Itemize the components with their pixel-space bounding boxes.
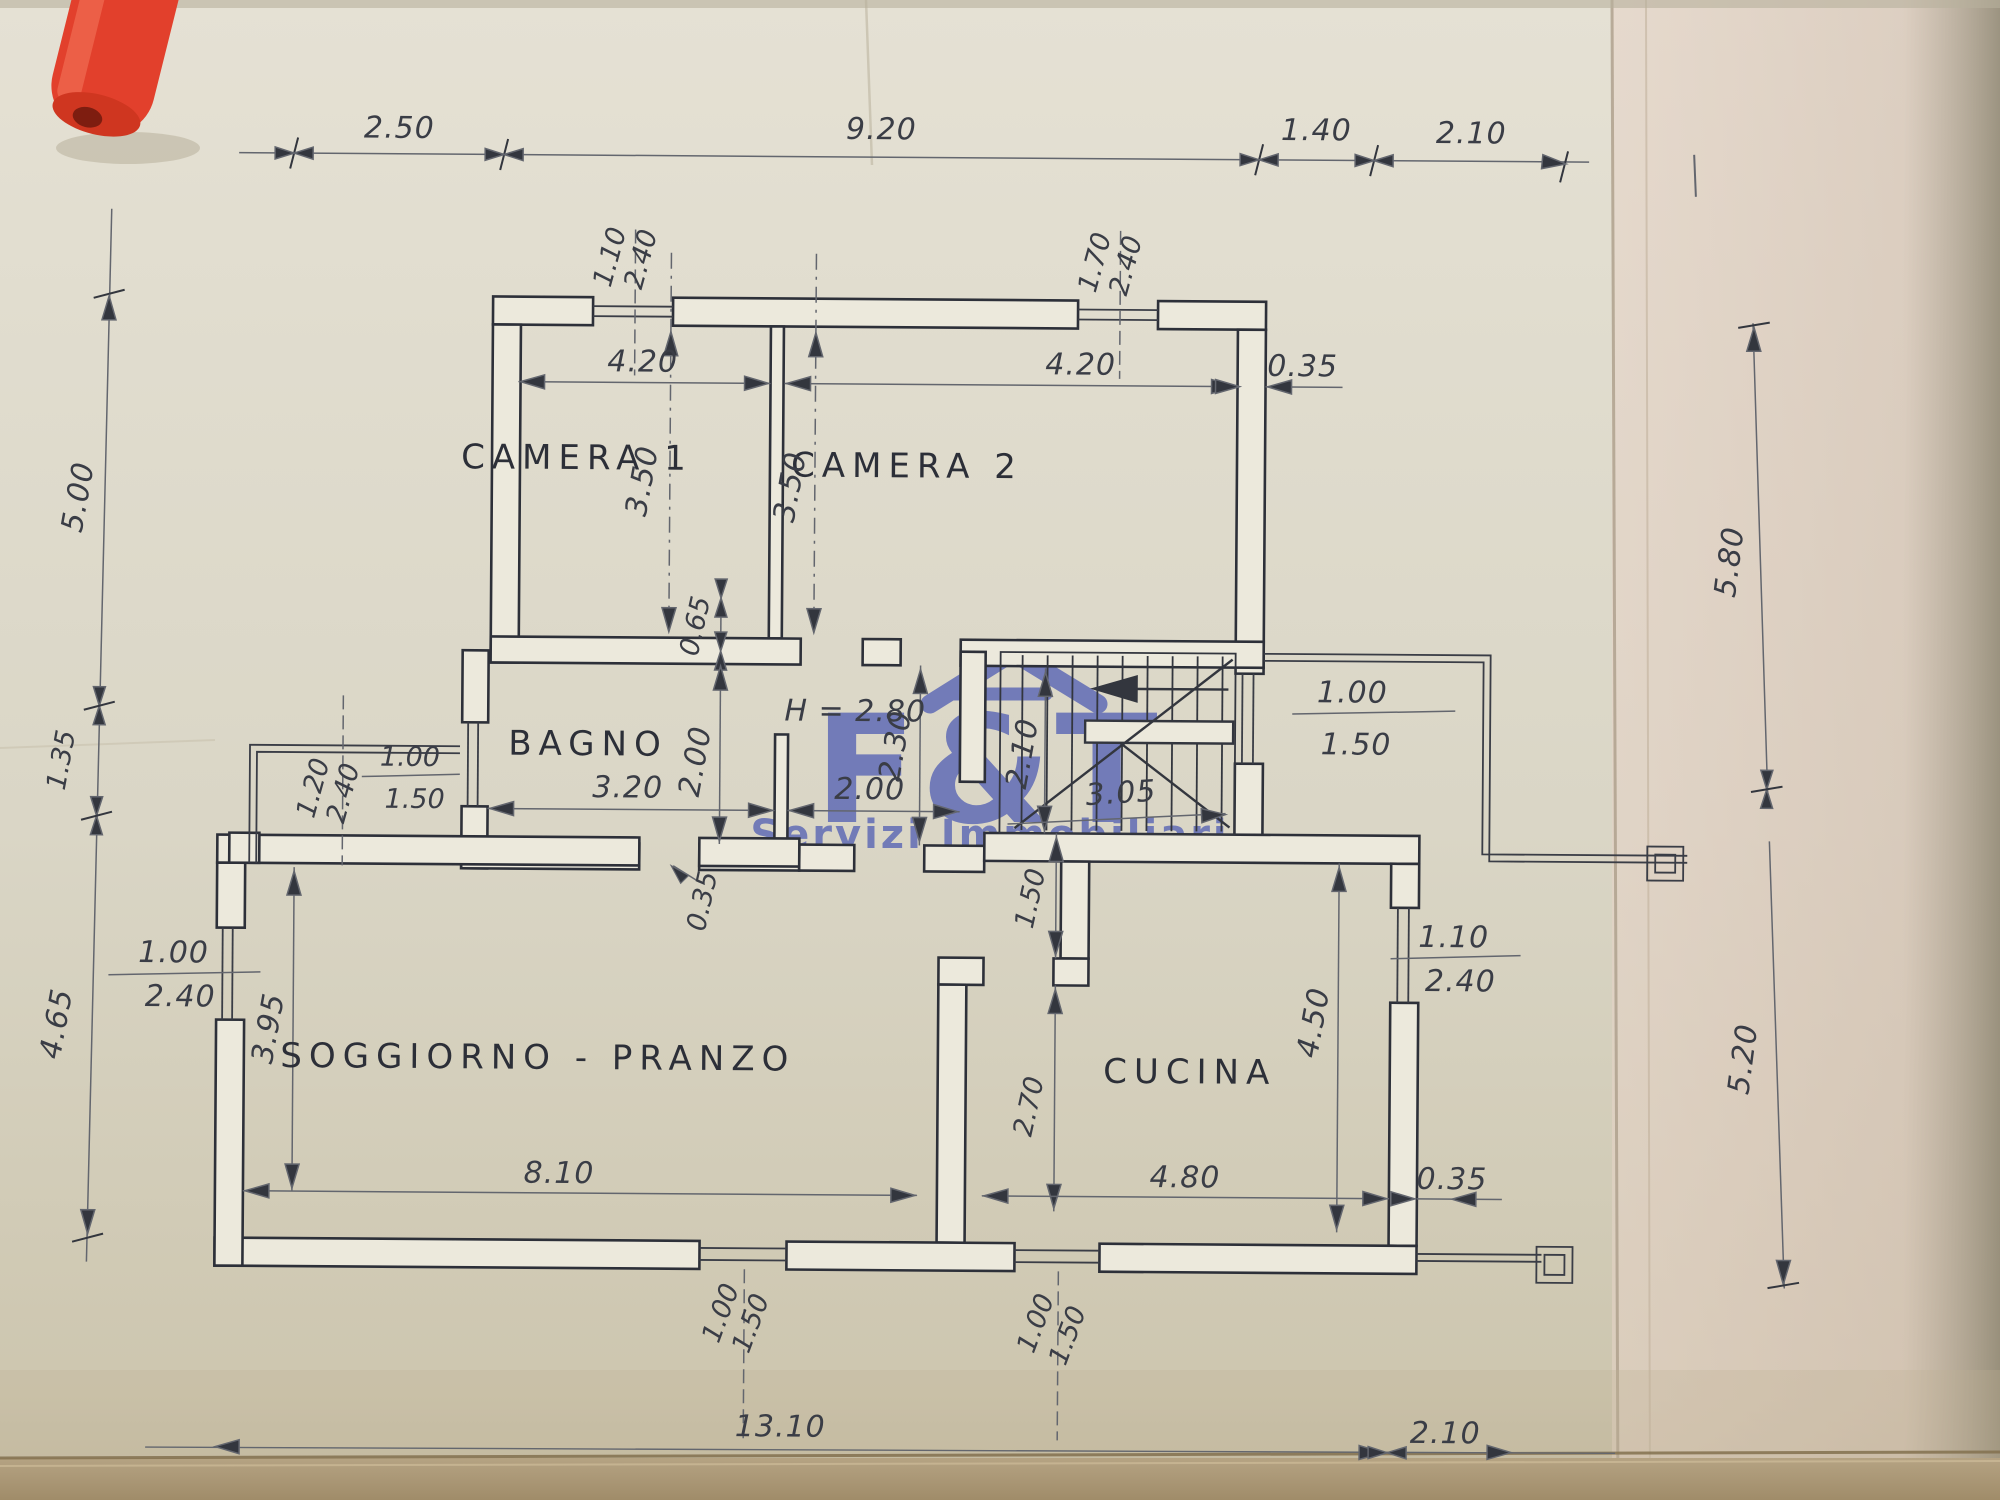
dim-cucina-width: 4.80 (1149, 1160, 1220, 1195)
dim-wall-bottom-right: 0.35 (1416, 1162, 1487, 1197)
dim-sogg-width: 8.10 (524, 1156, 595, 1191)
dim-window-sogg-left-w: 1.00 (138, 935, 209, 970)
dim-top-2: 9.20 (846, 112, 917, 147)
dim-top-1: 2.50 (364, 111, 435, 146)
dim-cam1-width: 4.20 (607, 344, 678, 379)
room-label-bagno: BAGNO (508, 724, 668, 765)
dim-total-width: 13.10 (735, 1409, 826, 1445)
paper-fold-right (1612, 0, 2000, 1500)
dim-window-stair-h: 1.50 (1321, 727, 1392, 762)
dim-window-cucina-w: 1.10 (1418, 920, 1489, 955)
dim-window-stair-w: 1.00 (1317, 675, 1388, 710)
room-label-camera2: CAMERA 2 (791, 446, 1023, 488)
dim-hall-width: 2.00 (834, 772, 905, 807)
floor-plan-drawing: F&T Servizi Immobiliari (0, 0, 2000, 1500)
dim-window-bagno-h: 1.50 (384, 784, 444, 815)
dim-window-sogg-left-h: 2.40 (145, 979, 216, 1014)
dim-cam2-width: 4.20 (1045, 347, 1116, 382)
dim-bottom-right: 2.10 (1410, 1416, 1481, 1451)
room-label-cucina: CUCINA (1103, 1052, 1276, 1093)
scanned-floor-plan-photo: F&T Servizi Immobiliari (0, 0, 2000, 1500)
dim-bagno-width: 3.20 (592, 770, 663, 805)
room-label-soggiorno: SOGGIORNO - PRANZO (280, 1036, 795, 1080)
dim-window-cucina-h: 2.40 (1425, 964, 1496, 999)
dim-wall-top-right: 0.35 (1267, 349, 1338, 384)
dim-window-bagno-w: 1.00 (380, 742, 440, 773)
dim-stair-width: 3.05 (1085, 774, 1158, 813)
stair-handrail (1085, 721, 1233, 744)
dim-top-3: 1.40 (1281, 113, 1352, 148)
dim-top-4: 2.10 (1436, 116, 1507, 151)
